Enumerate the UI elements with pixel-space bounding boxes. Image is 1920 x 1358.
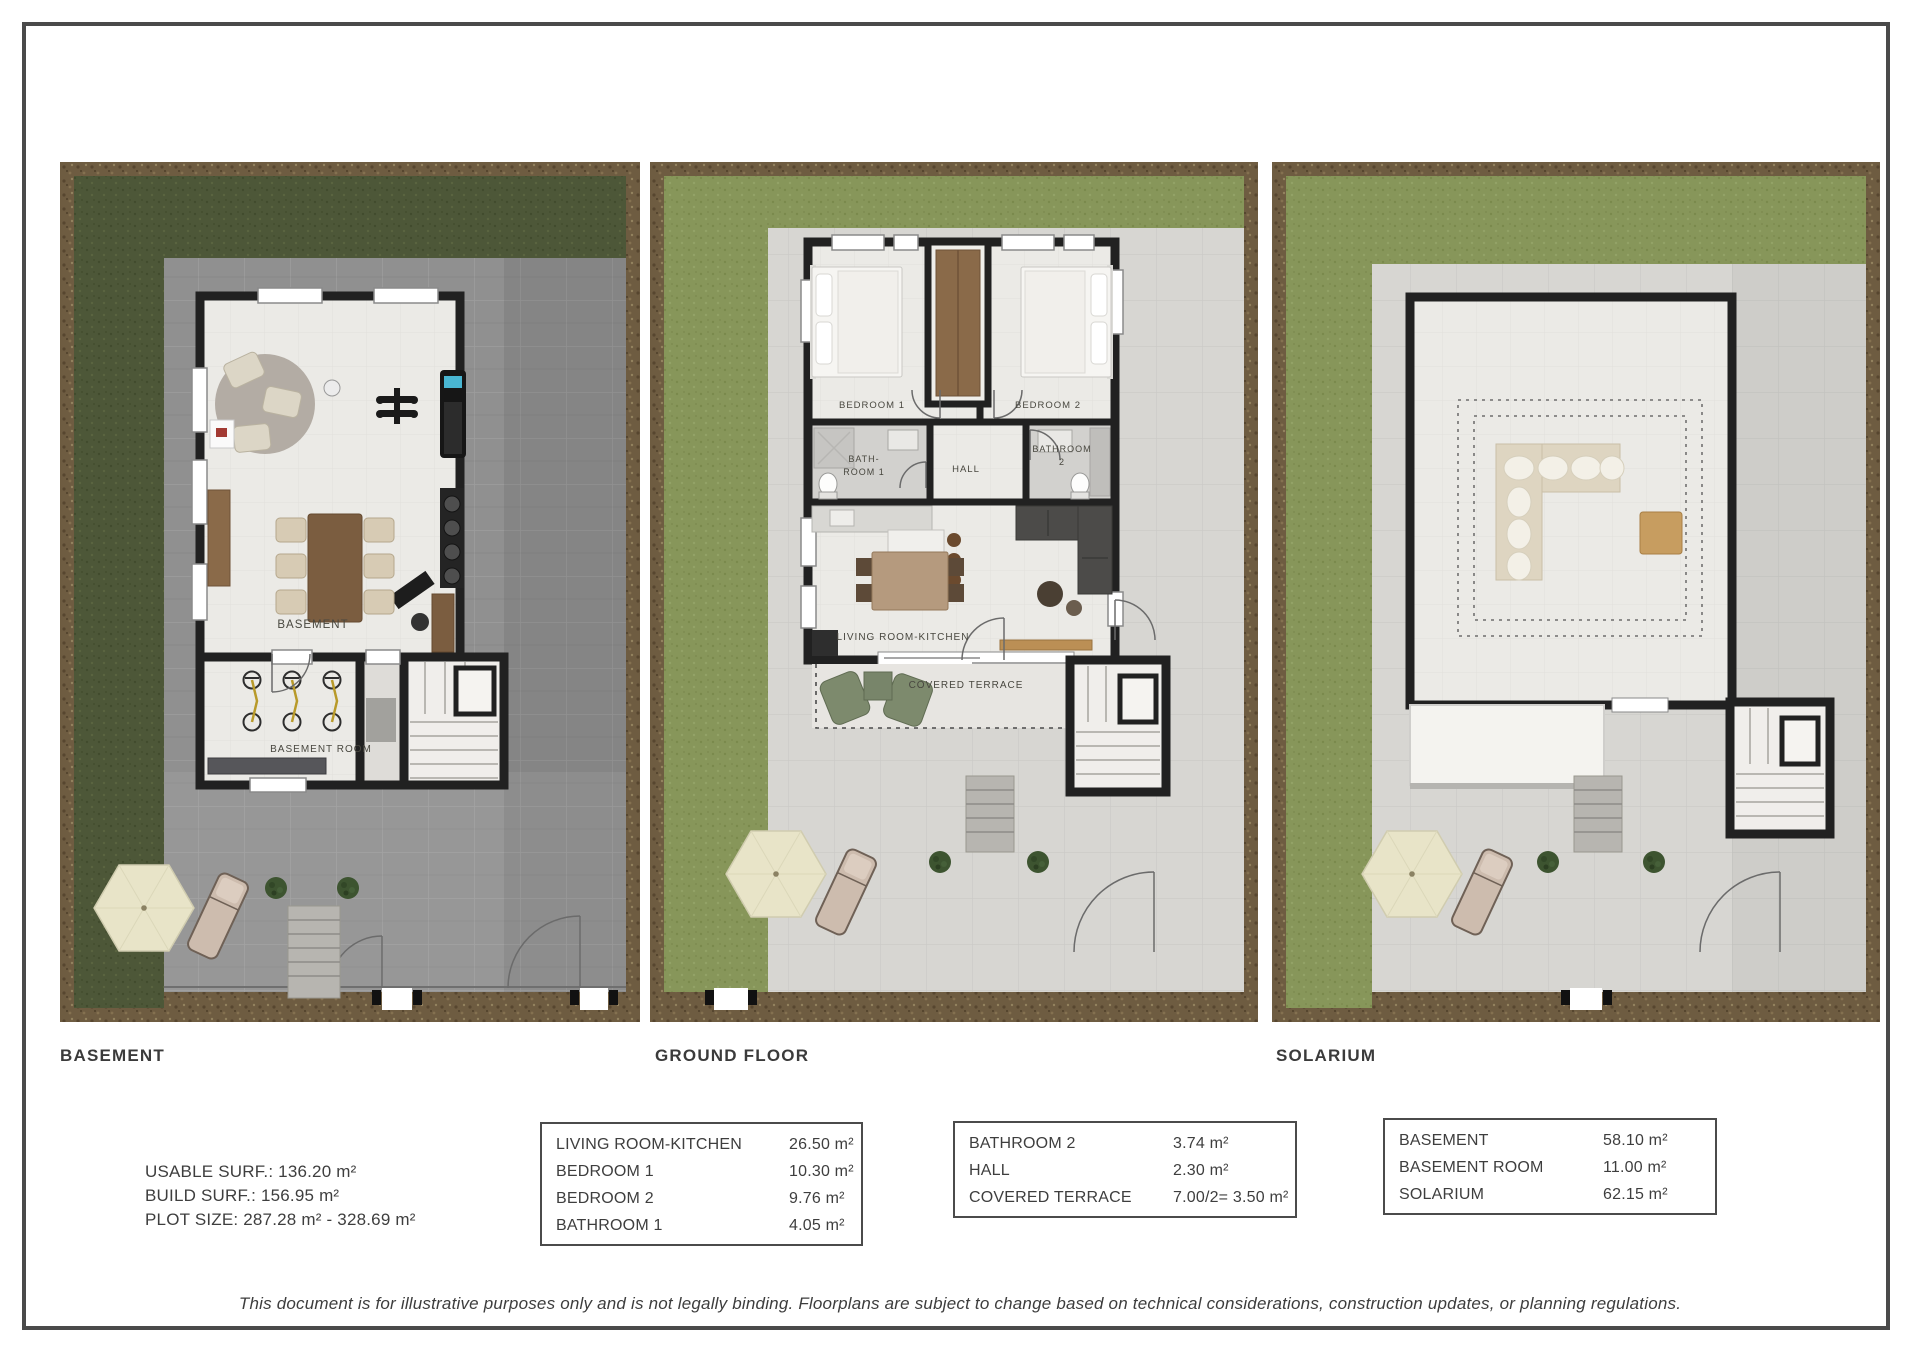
stairwell <box>1730 702 1830 834</box>
coffee-table <box>1640 512 1682 554</box>
row-label: COVERED TERRACE <box>969 1189 1132 1206</box>
row-label: LIVING ROOM-KITCHEN <box>556 1136 742 1153</box>
row-value: 3.74 m² <box>1173 1130 1229 1157</box>
basement-plan: BASEMENT BASEMENT ROOM <box>60 162 640 1022</box>
row-label: HALL <box>969 1162 1010 1179</box>
stairwell <box>1070 660 1166 792</box>
exterior-steps <box>966 776 1014 852</box>
table-row: HALL 2.30 m² <box>969 1157 1285 1184</box>
gate-opening <box>1570 988 1602 1010</box>
floor-mat <box>366 698 396 742</box>
room-label: BASEMENT <box>277 619 348 631</box>
row-label: BEDROOM 2 <box>556 1190 654 1207</box>
row-value: 62.15 m² <box>1603 1181 1668 1208</box>
row-value: 2.30 m² <box>1173 1157 1229 1184</box>
console <box>1000 640 1092 650</box>
table-row: BASEMENT 58.10 m² <box>1399 1127 1705 1154</box>
row-value: 58.10 m² <box>1603 1127 1668 1154</box>
usable-surface: USABLE SURF.: 136.20 m² <box>145 1160 416 1184</box>
exterior-steps <box>1574 776 1622 852</box>
sideboard <box>208 490 230 586</box>
table-row: BATHROOM 2 3.74 m² <box>969 1130 1285 1157</box>
hall <box>930 422 1026 502</box>
row-value: 4.05 m² <box>789 1212 845 1239</box>
disclaimer-text: This document is for illustrative purpos… <box>0 1294 1920 1314</box>
room-label: BATHROOM <box>1032 444 1091 454</box>
pouf <box>1037 581 1063 607</box>
wardrobe <box>928 242 988 404</box>
storage-shelf <box>208 758 326 774</box>
bed-1 <box>810 265 902 379</box>
row-value: 10.30 m² <box>789 1158 854 1185</box>
panel-title-ground-floor: GROUND FLOOR <box>655 1046 809 1066</box>
paving-shade <box>1732 264 1866 1008</box>
bottom-hedge <box>1372 992 1866 1008</box>
table-row: BEDROOM 1 10.30 m² <box>556 1158 851 1185</box>
opening <box>1612 698 1668 712</box>
lower-roof <box>1410 705 1604 785</box>
room-label: 2 <box>1059 457 1065 467</box>
table-row: SOLARIUM 62.15 m² <box>1399 1181 1705 1208</box>
table-row: BASEMENT ROOM 11.00 m² <box>1399 1154 1705 1181</box>
row-label: BEDROOM 1 <box>556 1163 654 1180</box>
treadmill <box>440 370 466 458</box>
area-table-2: BATHROOM 2 3.74 m² HALL 2.30 m² COVERED … <box>953 1121 1297 1218</box>
stove <box>812 630 838 656</box>
surface-stats: USABLE SURF.: 136.20 m² BUILD SURF.: 156… <box>145 1160 416 1232</box>
plant <box>1027 851 1049 873</box>
room-label: ROOM 1 <box>843 467 885 477</box>
ground-floor-plan: BEDROOM 1 BEDROOM 2 BATH- ROOM 1 HALL BA… <box>650 162 1258 1022</box>
room-label: BATH- <box>848 454 879 464</box>
row-value: 9.76 m² <box>789 1185 845 1212</box>
plant <box>1537 851 1559 873</box>
wine-rack <box>440 488 464 588</box>
row-label: SOLARIUM <box>1399 1186 1484 1203</box>
build-surface: BUILD SURF.: 156.95 m² <box>145 1184 416 1208</box>
dining-table <box>276 514 394 622</box>
plant <box>1643 851 1665 873</box>
gate-opening <box>382 988 412 1010</box>
gate-opening <box>580 988 608 1010</box>
room-label: BEDROOM 2 <box>1015 400 1081 411</box>
plant <box>929 851 951 873</box>
stairwell <box>404 657 504 785</box>
room-label: BEDROOM 1 <box>839 400 905 411</box>
table-row: BATHROOM 1 4.05 m² <box>556 1212 851 1239</box>
exterior-steps <box>288 906 340 998</box>
room-label: LIVING ROOM-KITCHEN <box>837 632 970 643</box>
panel-title-solarium: SOLARIUM <box>1276 1046 1376 1066</box>
room-label: COVERED TERRACE <box>909 680 1024 691</box>
table-row: LIVING ROOM-KITCHEN 26.50 m² <box>556 1131 851 1158</box>
table-row: COVERED TERRACE 7.00/2= 3.50 m² <box>969 1184 1285 1211</box>
gate-opening <box>714 988 748 1010</box>
panel-title-basement: BASEMENT <box>60 1046 165 1066</box>
row-value: 11.00 m² <box>1603 1154 1667 1181</box>
plot-size: PLOT SIZE: 287.28 m² - 328.69 m² <box>145 1208 416 1232</box>
table-row: BEDROOM 2 9.76 m² <box>556 1185 851 1212</box>
area-table-1: LIVING ROOM-KITCHEN 26.50 m² BEDROOM 1 1… <box>540 1122 863 1246</box>
area-table-3: BASEMENT 58.10 m² BASEMENT ROOM 11.00 m²… <box>1383 1118 1717 1215</box>
plant <box>265 877 287 899</box>
row-label: BATHROOM 1 <box>556 1217 663 1234</box>
row-value: 7.00/2= 3.50 m² <box>1173 1184 1289 1211</box>
dining-table <box>856 552 964 610</box>
solarium-plan <box>1272 162 1880 1022</box>
pouf <box>1066 600 1082 616</box>
room-label: HALL <box>952 464 980 475</box>
boundary-line <box>164 986 626 988</box>
room-label: BASEMENT ROOM <box>270 744 372 755</box>
floorplan-sheet: BASEMENT BASEMENT ROOM <box>0 0 1920 1358</box>
row-value: 26.50 m² <box>789 1131 854 1158</box>
row-label: BATHROOM 2 <box>969 1135 1076 1152</box>
plant <box>337 877 359 899</box>
row-label: BASEMENT ROOM <box>1399 1159 1544 1176</box>
bed-2 <box>1021 265 1113 379</box>
row-label: BASEMENT <box>1399 1132 1489 1149</box>
